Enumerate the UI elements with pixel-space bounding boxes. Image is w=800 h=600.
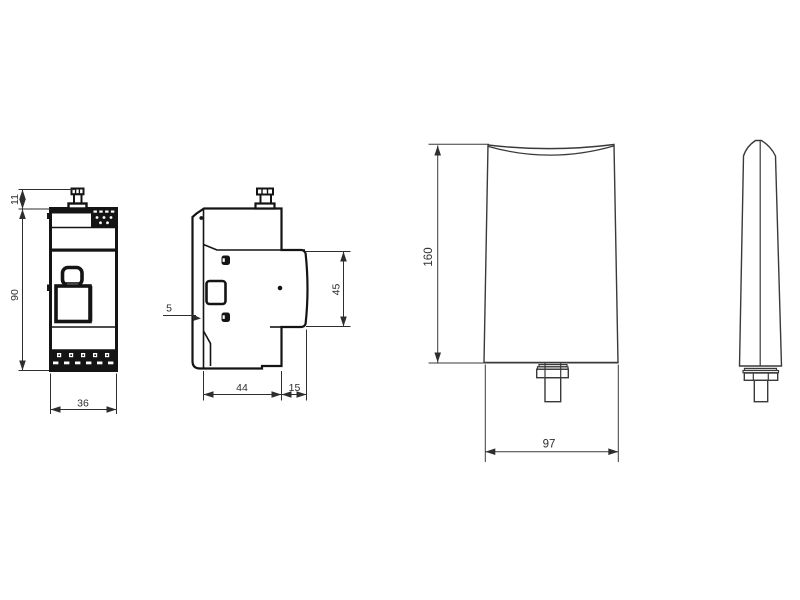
rail-slider — [207, 281, 226, 304]
dim-label-connector-height: 11 — [9, 194, 21, 205]
antenna-mount-side — [743, 368, 779, 401]
antenna-mount-front — [537, 363, 569, 402]
led-dot — [99, 221, 102, 224]
dimension-cover-height: 45 — [306, 252, 351, 327]
led-panel — [91, 209, 117, 228]
led-dot — [106, 221, 109, 224]
device-side-view: 5 44 15 45 — [163, 189, 351, 401]
antenna-front-body — [484, 145, 618, 363]
led-dot — [103, 216, 106, 219]
antenna-connector-front — [69, 189, 87, 209]
dimension-antenna-width: 97 — [485, 365, 618, 463]
dim-label-body-width: 36 — [77, 398, 89, 410]
mount-nut — [537, 369, 569, 378]
sim-door-frame — [56, 286, 90, 322]
threaded-stub — [754, 380, 767, 401]
mount-nut — [744, 373, 777, 380]
led-dot — [96, 216, 99, 219]
device-front-view: 11 90 36 — [9, 189, 117, 415]
side-notch — [47, 285, 51, 292]
dim-label-body-height: 90 — [9, 289, 21, 301]
panel-divider — [51, 249, 117, 252]
cover-hole-dot — [278, 286, 283, 291]
technical-drawing-canvas: 11 90 36 — [0, 0, 800, 600]
side-notch — [47, 213, 51, 219]
dimension-connector-height: 11 — [9, 190, 75, 210]
threaded-stub — [545, 378, 561, 402]
dimension-body-height: 90 — [9, 209, 49, 371]
dim-label-cover-height: 45 — [331, 284, 343, 296]
dim-label-antenna-width: 97 — [543, 439, 556, 451]
dim-label-body-depth: 44 — [236, 382, 248, 394]
dimension-body-width: 36 — [51, 374, 117, 415]
dim-label-antenna-height: 160 — [423, 247, 435, 266]
dim-label-cover-depth: 15 — [289, 382, 301, 394]
terminal-block — [51, 350, 117, 369]
antenna-connector-side — [256, 189, 275, 209]
antenna-side-view — [740, 141, 782, 402]
antenna-front-view: 160 97 — [423, 144, 618, 462]
mount-hole — [199, 216, 203, 220]
dim-label-clip-offset: 5 — [166, 303, 172, 315]
drawing-sheet: 11 90 36 — [0, 0, 800, 600]
led-dot — [110, 216, 113, 219]
